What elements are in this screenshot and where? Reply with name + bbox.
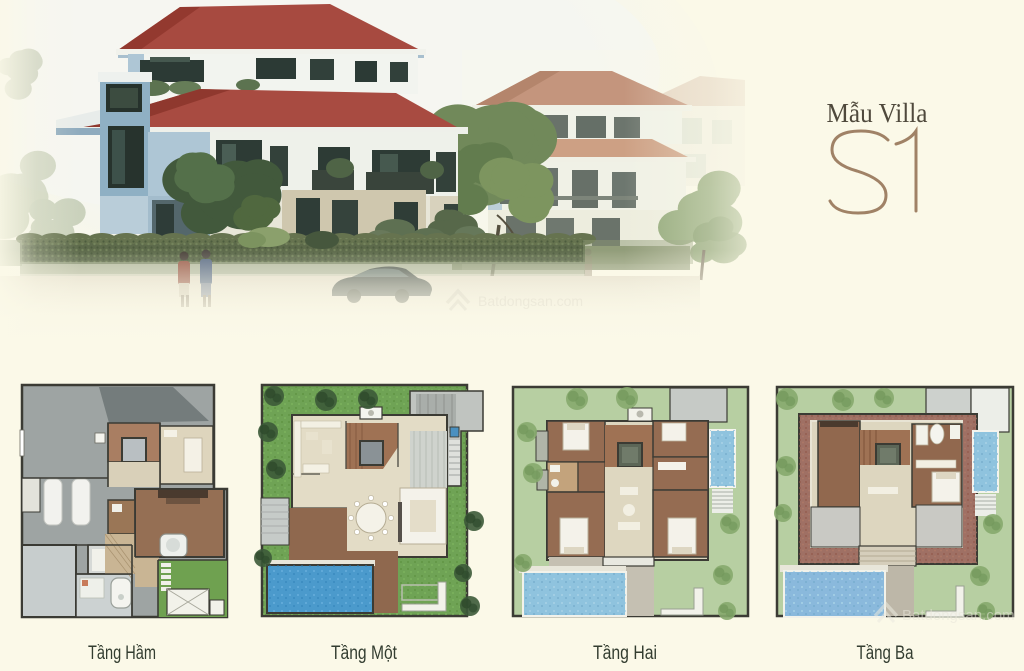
svg-text:Tầng Hai: Tầng Hai [593,643,657,664]
svg-text:Tầng Ba: Tầng Ba [857,643,914,664]
svg-text:Batdongsan.com: Batdongsan.com [902,607,1015,624]
svg-text:Tầng Một: Tầng Một [331,643,398,664]
svg-text:Mẫu Villa: Mẫu Villa [827,98,928,128]
svg-text:Tầng Hầm: Tầng Hầm [88,643,156,664]
svg-text:Batdongsan.com: Batdongsan.com [478,293,583,309]
